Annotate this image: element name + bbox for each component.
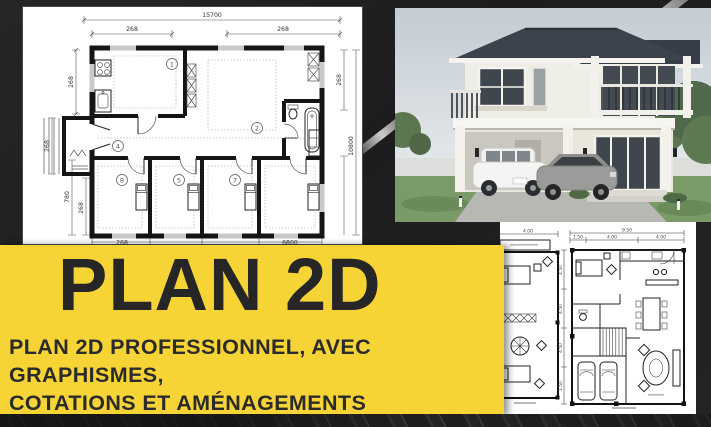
dim-label: 4.00: [523, 229, 533, 235]
banner-subtitle-line2: COTATIONS ET AMÉNAGEMENTS: [9, 389, 504, 417]
small-floorplan-right: 9.50 1.50 4.00 4.00 4.50 4.50 4.50 1.50: [556, 226, 692, 412]
dim-label: 268: [44, 140, 51, 152]
house-render-illustration: [395, 8, 711, 222]
dim-label: 15700: [202, 12, 222, 19]
outer-walls: [92, 48, 322, 236]
dimension-lines-top: 15700 268 268: [82, 12, 342, 38]
dim-label: 268: [336, 74, 343, 86]
bathroom-fixtures: [288, 105, 319, 152]
garage: [572, 356, 626, 404]
room-number: 4: [116, 142, 120, 150]
dim-label: 4.00: [607, 235, 617, 241]
room-number: 2: [255, 124, 259, 132]
bathroom: [572, 304, 600, 328]
living-room: [626, 338, 680, 396]
kitchen-fixtures: [95, 60, 111, 112]
dim-label: 4.50: [558, 304, 564, 314]
closet-row: [500, 314, 536, 322]
dim-label: 4.50: [558, 265, 564, 275]
main-floorplan-card: 15700 268 268 268 268 780 268 268: [22, 6, 363, 245]
room-number: 8: [120, 176, 124, 184]
round-feature: [511, 337, 546, 355]
stairs: [600, 328, 626, 356]
house-render-photo: [395, 8, 711, 222]
wardrobes: [187, 53, 319, 107]
dim-label: 780: [64, 191, 71, 203]
room-numbers: 1 2 4 8 5 7: [113, 59, 263, 186]
windows: [90, 46, 325, 239]
main-floorplan-drawing: 15700 268 268 268 268 780 268 268: [22, 6, 363, 245]
promo-graphic: 15700 268 268 268 268 780 268 268: [0, 0, 711, 427]
upper-window: [475, 68, 547, 111]
banner-subtitle: PLAN 2D PROFESSIONNEL, AVEC GRAPHISMES, …: [9, 333, 504, 417]
dimension-lines-right: 268 10800: [336, 50, 360, 235]
bedroom: [572, 250, 620, 304]
small-plans-panel: 4.00: [500, 222, 696, 414]
dim-label: 268: [78, 202, 85, 214]
dim-label: 1.50: [558, 381, 564, 391]
bedroom-top: [502, 257, 552, 284]
doors: [88, 112, 306, 174]
bedroom-bottom: [502, 366, 544, 388]
small-floorplan-left: 4.00: [500, 228, 564, 410]
room-number: 7: [233, 176, 237, 184]
beds: [136, 184, 319, 210]
room-number: 1: [170, 60, 174, 68]
dim-label: 268: [126, 26, 138, 33]
dim-label: 4.50: [558, 343, 564, 353]
dim-label: 268: [68, 76, 75, 88]
entrance-porch: [44, 118, 92, 174]
room-number: 5: [177, 176, 181, 184]
banner-subtitle-line1: PLAN 2D PROFESSIONNEL, AVEC GRAPHISMES,: [9, 333, 504, 389]
interior-walls: [92, 48, 322, 236]
dim-label: 10800: [348, 136, 355, 156]
dimension-lines-left: 268 268 780 268: [44, 48, 90, 235]
dim-label: 1.50: [573, 235, 583, 241]
kitchen: [620, 250, 684, 285]
dim-label: 9.50: [622, 228, 632, 234]
dim-label: 268: [277, 26, 289, 33]
banner-title: PLAN 2D: [58, 247, 382, 323]
dim-label: 4.00: [656, 235, 666, 241]
dining-table: [636, 298, 667, 330]
bottom-texture-strip: [0, 414, 711, 427]
marketing-banner: PLAN 2D PLAN 2D PROFESSIONNEL, AVEC GRAP…: [0, 245, 504, 416]
